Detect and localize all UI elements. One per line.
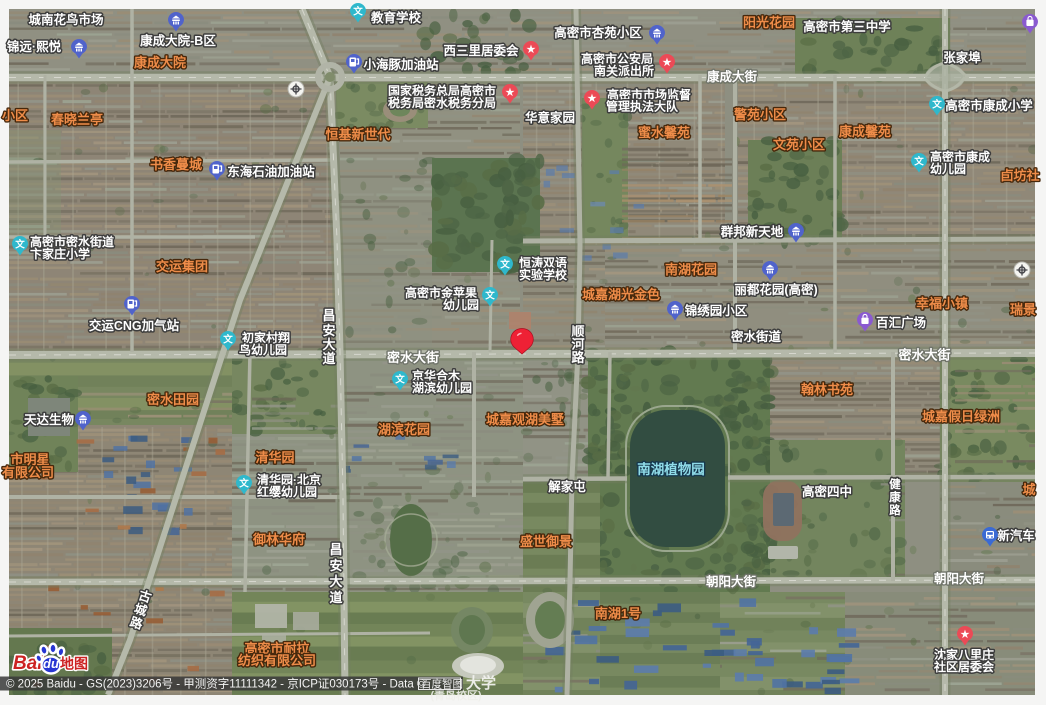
svg-text:蜜水馨苑: 蜜水馨苑 bbox=[638, 125, 690, 140]
svg-text:湖滨花园: 湖滨花园 bbox=[378, 422, 430, 437]
svg-text:文: 文 bbox=[484, 289, 495, 301]
svg-text:警苑小区: 警苑小区 bbox=[734, 107, 786, 122]
svg-text:路: 路 bbox=[889, 503, 901, 517]
svg-text:文: 文 bbox=[931, 98, 942, 110]
svg-text:管理执法大队: 管理执法大队 bbox=[606, 99, 679, 114]
svg-text:南湖1号: 南湖1号 bbox=[595, 606, 641, 621]
svg-text:幼儿园: 幼儿园 bbox=[930, 161, 966, 176]
svg-text:© 2025 Baidu - GS(2023)3206号 -: © 2025 Baidu - GS(2023)3206号 - 甲测资字11111… bbox=[6, 677, 426, 691]
svg-text:密水大街: 密水大街 bbox=[386, 350, 439, 365]
svg-text:阳光花园: 阳光花园 bbox=[743, 15, 795, 30]
svg-text:御林华府: 御林华府 bbox=[252, 532, 305, 547]
svg-text:文: 文 bbox=[238, 477, 249, 489]
svg-text:★: ★ bbox=[663, 57, 672, 68]
svg-text:健: 健 bbox=[889, 477, 901, 491]
svg-text:高密市杏苑小区: 高密市杏苑小区 bbox=[554, 25, 642, 40]
svg-text:道: 道 bbox=[322, 351, 335, 366]
svg-text:城嘉湖光金色: 城嘉湖光金色 bbox=[582, 287, 660, 302]
svg-text:安: 安 bbox=[322, 323, 335, 338]
svg-text:文: 文 bbox=[499, 258, 510, 270]
svg-text:朝阳大街: 朝阳大街 bbox=[706, 574, 757, 589]
svg-text:★: ★ bbox=[588, 93, 597, 104]
svg-text:高密市康成小学: 高密市康成小学 bbox=[945, 98, 1033, 113]
svg-text:南湖花园: 南湖花园 bbox=[665, 262, 717, 277]
svg-text:大: 大 bbox=[322, 337, 335, 352]
svg-text:书香蔓城: 书香蔓城 bbox=[150, 157, 202, 172]
svg-text:恒基新世代: 恒基新世代 bbox=[325, 127, 390, 142]
svg-text:清华园: 清华园 bbox=[255, 450, 294, 465]
svg-text:丽都花园(高密): 丽都花园(高密) bbox=[734, 282, 817, 297]
svg-text:鸟幼儿园: 鸟幼儿园 bbox=[239, 342, 287, 357]
svg-text:盛世御景: 盛世御景 bbox=[520, 534, 572, 549]
svg-text:密水大街: 密水大街 bbox=[897, 348, 950, 363]
svg-text:小海豚加油站: 小海豚加油站 bbox=[362, 57, 439, 72]
svg-text:交运集团: 交运集团 bbox=[156, 259, 208, 274]
svg-text:南湖植物园: 南湖植物园 bbox=[637, 461, 705, 477]
svg-text:城嘉假日绿洲: 城嘉假日绿洲 bbox=[922, 409, 1000, 424]
svg-text:红缨幼儿园: 红缨幼儿园 bbox=[257, 484, 317, 499]
svg-text:春晓兰亭: 春晓兰亭 bbox=[50, 112, 103, 127]
svg-text:有限公司: 有限公司 bbox=[2, 465, 54, 480]
svg-text:★: ★ bbox=[506, 87, 515, 98]
svg-text:康: 康 bbox=[889, 490, 901, 504]
svg-text:教育学校: 教育学校 bbox=[370, 10, 422, 25]
svg-text:翰林书苑: 翰林书苑 bbox=[801, 382, 853, 397]
svg-text:康成大院: 康成大院 bbox=[134, 55, 186, 70]
svg-text:文: 文 bbox=[913, 155, 924, 167]
svg-text:路: 路 bbox=[571, 350, 585, 365]
svg-text:纺织有限公司: 纺织有限公司 bbox=[238, 653, 316, 668]
svg-text:解家屯: 解家屯 bbox=[548, 479, 586, 494]
svg-text:东海石油加油站: 东海石油加油站 bbox=[227, 164, 315, 179]
svg-text:★: ★ bbox=[527, 44, 536, 55]
svg-text:安: 安 bbox=[329, 558, 342, 573]
svg-text:实验学校: 实验学校 bbox=[519, 267, 568, 282]
svg-text:大: 大 bbox=[329, 574, 342, 589]
svg-text:文苑小区: 文苑小区 bbox=[773, 137, 825, 152]
svg-text:du: du bbox=[43, 656, 59, 671]
svg-text:高密市第三中学: 高密市第三中学 bbox=[803, 19, 891, 34]
svg-text:康成大街: 康成大街 bbox=[707, 69, 758, 84]
svg-text:新汽车: 新汽车 bbox=[997, 528, 1035, 543]
svg-text:南关派出所: 南关派出所 bbox=[594, 63, 654, 78]
svg-text:文: 文 bbox=[352, 5, 363, 17]
svg-text:瑞景: 瑞景 bbox=[1010, 302, 1036, 317]
svg-text:城南花鸟市场: 城南花鸟市场 bbox=[28, 12, 103, 27]
svg-text:文: 文 bbox=[14, 238, 25, 250]
svg-text:小区: 小区 bbox=[2, 108, 28, 123]
svg-text:道: 道 bbox=[329, 590, 342, 605]
svg-text:密水田园: 密水田园 bbox=[146, 392, 199, 407]
svg-text:地图: 地图 bbox=[60, 656, 88, 672]
svg-text:卣坊社: 卣坊社 bbox=[1000, 168, 1039, 183]
svg-text:天达生物: 天达生物 bbox=[24, 412, 75, 427]
svg-text:群邦新天地: 群邦新天地 bbox=[720, 224, 784, 239]
svg-text:朝阳大街: 朝阳大街 bbox=[934, 571, 985, 586]
svg-text:百汇广场: 百汇广场 bbox=[876, 315, 926, 330]
svg-text:税务局密水税务分局: 税务局密水税务分局 bbox=[388, 95, 496, 110]
svg-text:城嘉观湖美墅: 城嘉观湖美墅 bbox=[486, 412, 564, 427]
svg-text:锦绣园小区: 锦绣园小区 bbox=[685, 303, 748, 318]
svg-text:华意家园: 华意家园 bbox=[525, 110, 575, 125]
svg-text:幸福小镇: 幸福小镇 bbox=[916, 296, 968, 311]
svg-text:社区居委会: 社区居委会 bbox=[933, 659, 995, 674]
svg-text:锦远·熙悦: 锦远·熙悦 bbox=[7, 39, 62, 54]
svg-text:张家埠: 张家埠 bbox=[943, 50, 981, 65]
svg-text:城: 城 bbox=[1022, 482, 1035, 497]
svg-text:★: ★ bbox=[961, 629, 970, 640]
svg-text:昌: 昌 bbox=[322, 308, 335, 323]
svg-text:交运CNG加气站: 交运CNG加气站 bbox=[89, 318, 180, 333]
svg-text:百度智图: 百度智图 bbox=[421, 678, 463, 691]
svg-text:康成馨苑: 康成馨苑 bbox=[839, 124, 891, 139]
svg-text:幼儿园: 幼儿园 bbox=[443, 297, 479, 312]
svg-text:西三里居委会: 西三里居委会 bbox=[443, 43, 519, 58]
svg-text:康成大院-B区: 康成大院-B区 bbox=[140, 33, 216, 48]
svg-text:昌: 昌 bbox=[329, 542, 342, 557]
svg-text:高密四中: 高密四中 bbox=[802, 484, 852, 499]
svg-text:密水街道: 密水街道 bbox=[730, 329, 782, 344]
svg-text:文: 文 bbox=[222, 333, 233, 345]
svg-text:卞家庄小学: 卞家庄小学 bbox=[30, 246, 90, 261]
svg-text:湖滨幼儿园: 湖滨幼儿园 bbox=[412, 380, 472, 395]
svg-text:文: 文 bbox=[394, 373, 405, 385]
